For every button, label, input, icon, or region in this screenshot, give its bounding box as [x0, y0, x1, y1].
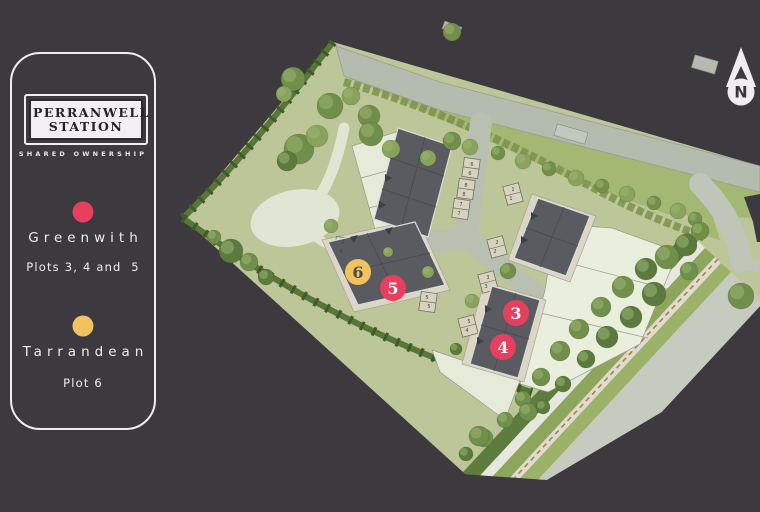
tree-icon	[443, 132, 461, 150]
parking-bay-label: 8	[462, 192, 465, 198]
parking-bay-label: 1	[511, 187, 514, 193]
side-road-stub	[737, 262, 760, 267]
tree-icon	[647, 196, 661, 210]
tree-icon	[491, 146, 505, 160]
tree-icon	[536, 400, 550, 414]
parking-bay-label: 2	[495, 240, 498, 246]
tree-icon	[728, 283, 754, 309]
legend-panel: PERRANWELL STATION SHARED OWNERSHIP Gree…	[10, 52, 156, 430]
tree-icon	[240, 253, 258, 271]
tree-icon	[422, 266, 434, 278]
tree-icon	[635, 258, 657, 280]
tree-icon	[532, 368, 550, 386]
tarrandean-plots-label: Plot 6	[12, 376, 154, 390]
development-logo: PERRANWELL STATION	[24, 94, 148, 145]
plot-marker-4[interactable]: 4	[490, 334, 516, 360]
tree-icon	[420, 150, 436, 166]
tree-icon	[591, 297, 611, 317]
tree-icon	[670, 203, 686, 219]
plot-marker-number: 5	[387, 279, 398, 298]
tree-icon	[219, 239, 243, 263]
tree-icon	[655, 245, 679, 269]
tree-icon	[595, 179, 609, 193]
tree-icon	[443, 23, 461, 41]
tree-icon	[569, 319, 589, 339]
parking-bay-label: 3	[484, 284, 487, 290]
tree-icon	[500, 263, 516, 279]
tree-icon	[680, 262, 698, 280]
tarrandean-legend-dot	[72, 315, 94, 337]
tree-icon	[383, 247, 393, 257]
tree-icon	[620, 306, 642, 328]
parking-bay-block	[457, 178, 475, 199]
tree-icon	[359, 122, 383, 146]
tarrandean-label: Tarrandean	[12, 344, 154, 360]
tree-icon	[612, 276, 634, 298]
parking-bay-label: 3	[486, 275, 489, 281]
parking-bay-label: 5	[427, 304, 430, 310]
tree-icon	[469, 426, 489, 446]
tree-icon	[519, 403, 537, 421]
tree-icon	[619, 186, 635, 202]
tree-icon	[497, 412, 513, 428]
logo-box: PERRANWELL STATION	[29, 99, 143, 140]
tree-icon	[555, 376, 571, 392]
plot-marker-number: 3	[510, 304, 521, 323]
parking-bay-label: 6	[468, 171, 471, 177]
parking-bay-label: 5	[467, 319, 470, 325]
tree-icon	[515, 153, 531, 169]
tree-icon	[577, 350, 595, 368]
north-compass: N	[720, 42, 760, 112]
compass-north-label: N	[734, 83, 747, 102]
tree-icon	[459, 447, 473, 461]
parking-bay-label: 7	[457, 211, 460, 217]
parking-bay-label: 4	[465, 328, 468, 334]
parking-bay-label: 1	[509, 196, 512, 202]
tree-icon	[542, 162, 556, 176]
tree-icon	[568, 170, 584, 186]
shared-ownership-tagline: SHARED OWNERSHIP	[12, 150, 154, 158]
tree-icon	[207, 230, 221, 244]
greenwith-plots-label: Plots 3, 4 and 5	[12, 260, 154, 274]
tree-icon	[465, 294, 479, 308]
tree-icon	[462, 139, 478, 155]
plot-marker-5[interactable]: 5	[380, 275, 406, 301]
tree-icon	[450, 343, 462, 355]
logo-line-1: PERRANWELL	[33, 106, 139, 120]
tree-icon	[342, 87, 360, 105]
greenwith-label: Greenwith	[12, 230, 154, 246]
tree-icon	[596, 326, 618, 348]
plot-marker-number: 6	[352, 263, 363, 282]
plot-marker-6[interactable]: 6	[345, 259, 371, 285]
tree-icon	[276, 86, 292, 102]
parking-bay-label: 6	[339, 249, 342, 255]
plot-marker-3[interactable]: 3	[503, 300, 529, 326]
greenwith-legend-dot	[72, 201, 94, 223]
parking-bay-label: 6	[470, 162, 473, 168]
tree-icon	[382, 140, 400, 158]
parking-bay-label: 2	[493, 249, 496, 255]
tree-icon	[324, 219, 338, 233]
tree-icon	[306, 125, 328, 147]
tree-icon	[258, 269, 274, 285]
parking-bay-label: 5	[425, 295, 428, 301]
site-plan-page: 668877112233546655 6534 PERRANWELL STATI…	[0, 0, 760, 512]
logo-line-2: STATION	[33, 120, 139, 134]
parking-bay-label: 6	[341, 240, 344, 246]
tree-icon	[550, 341, 570, 361]
tree-icon	[642, 282, 666, 306]
plot-marker-number: 4	[497, 338, 508, 357]
parking-bay-label: 8	[464, 183, 467, 189]
parking-bay-label: 7	[459, 202, 462, 208]
tree-icon	[317, 93, 343, 119]
tree-icon	[277, 151, 297, 171]
